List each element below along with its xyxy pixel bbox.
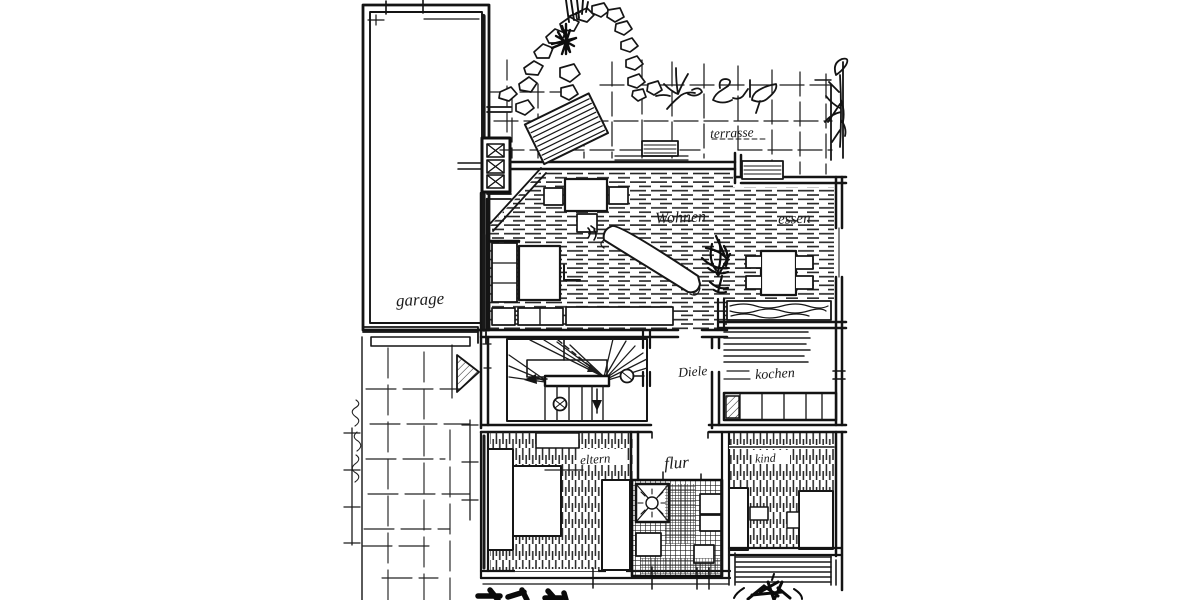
svg-text:flur: flur: [664, 453, 690, 473]
svg-text:Diele: Diele: [677, 363, 708, 380]
svg-text:essen: essen: [778, 211, 811, 228]
svg-text:eltern: eltern: [580, 450, 611, 467]
svg-text:Wohnen: Wohnen: [655, 208, 707, 227]
svg-text:kind: kind: [755, 451, 777, 466]
svg-text:garage: garage: [396, 289, 446, 311]
svg-text:kochen: kochen: [755, 366, 795, 383]
